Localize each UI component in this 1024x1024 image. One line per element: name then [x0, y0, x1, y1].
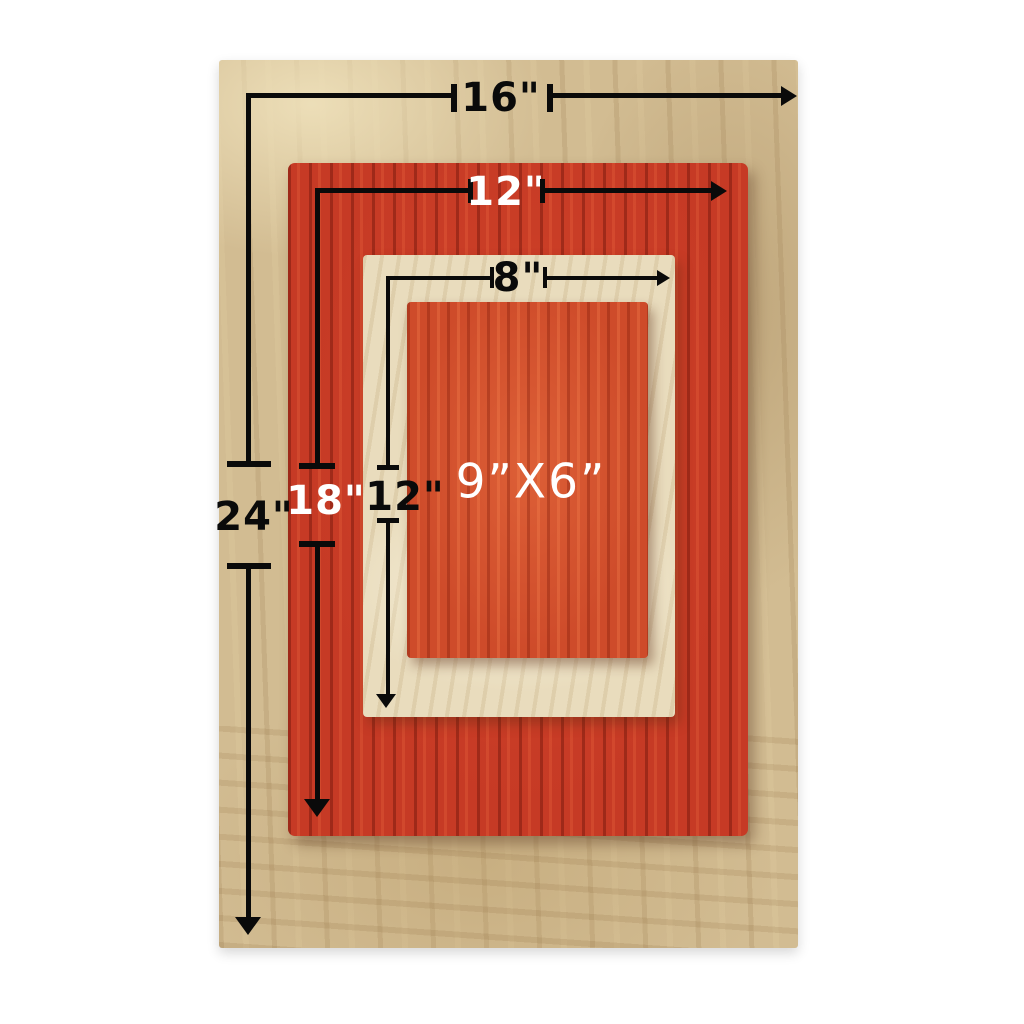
dim-18-line-bottom: [315, 547, 320, 800]
dim-24-crossbar-top: [227, 461, 271, 467]
dim-12h-line-bottom: [386, 523, 390, 694]
dim-12w-line-right: [545, 188, 711, 193]
dim-8-line-right: [547, 276, 657, 280]
dim-18-crossbar-top: [299, 463, 335, 469]
dim-24-line-top: [246, 93, 251, 463]
dim-12h-label: 12": [365, 477, 445, 517]
dim-16-line-left: [248, 93, 453, 98]
dim-8-arrow-right-icon: [657, 270, 670, 286]
dim-16-label: 16": [461, 78, 541, 118]
dim-12h-arrow-down-icon: [376, 694, 396, 708]
dim-24-arrow-down-icon: [235, 917, 261, 935]
dim-16-tick-left: [451, 84, 457, 112]
photo-canvas: 16" 24" 12" 18" 8" 12" 9”X6”: [0, 0, 1024, 1024]
dim-12h-line-top: [386, 276, 390, 466]
dim-24-label: 24": [214, 497, 294, 537]
dim-16-arrow-right-icon: [781, 86, 797, 106]
dim-24-line-bottom: [246, 569, 251, 918]
dim-12w-line-left: [315, 188, 470, 193]
dim-8-line-left: [386, 276, 492, 280]
dim-12w-label: 12": [466, 172, 546, 212]
dim-18-arrow-down-icon: [304, 799, 330, 817]
dim-18-line-top: [315, 188, 320, 465]
dim-12w-arrow-right-icon: [711, 181, 727, 201]
dim-16-line-right: [553, 93, 781, 98]
dim-12h-crossbar-top: [377, 465, 399, 470]
dim-8-label: 8": [493, 258, 544, 298]
dim-16-tick-right: [547, 84, 553, 112]
inner-board-size-label: 9”X6”: [456, 459, 607, 506]
dim-18-label: 18": [286, 481, 366, 521]
